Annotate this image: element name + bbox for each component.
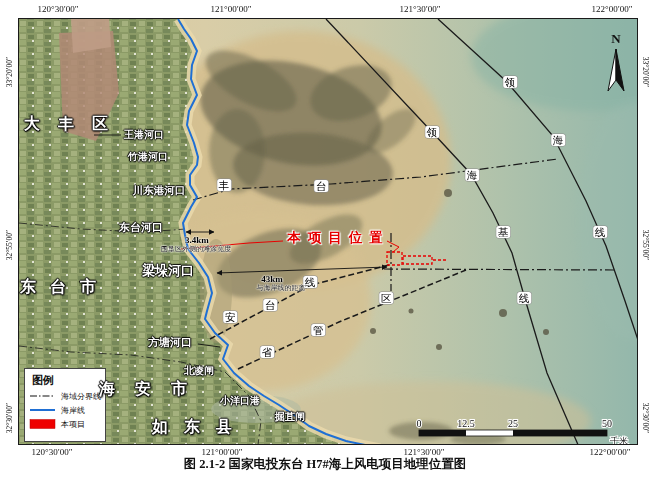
legend-items: 海域分界线海岸线本项目 [25, 389, 105, 431]
legend-item-label: 海岸线 [61, 405, 85, 416]
satellite-basemap: 0 12.5 25 50 千米 [19, 19, 638, 445]
scale-tick: 0 [417, 418, 422, 429]
compass: N [599, 31, 633, 103]
latitude-label-left: 33°20′00″ [5, 57, 14, 87]
scale-tick: 25 [508, 418, 518, 429]
longitude-label-top: 122°00′00″ [592, 4, 633, 14]
scale-unit: 千米 [610, 436, 628, 445]
map-canvas: 0 12.5 25 50 千米 图例 海域分界线海岸线本项目 N [18, 18, 638, 445]
legend-item: 海岸线 [25, 403, 105, 417]
legend-item: 本项目 [25, 417, 105, 431]
legend-title: 图例 [25, 369, 105, 389]
north-label: N [599, 31, 633, 47]
legend-symbol-coast [29, 405, 56, 415]
scale-tick: 50 [602, 418, 612, 429]
legend-item-label: 海域分界线 [61, 391, 101, 402]
longitude-label-top: 120°30′00″ [38, 4, 79, 14]
latitude-label-right: 33°20′00″ [641, 57, 650, 87]
figure-caption: 图 2.1-2 国家电投东台 H7#海上风电项目地理位置图 [0, 456, 650, 473]
legend: 图例 海域分界线海岸线本项目 [24, 368, 106, 442]
latitude-label-right: 32°55′00″ [641, 230, 650, 260]
latitude-label-left: 32°55′00″ [5, 230, 14, 260]
longitude-label-top: 121°00′00″ [211, 4, 252, 14]
latitude-label-right: 32°30′00″ [641, 403, 650, 433]
legend-item: 海域分界线 [25, 389, 105, 403]
legend-item-label: 本项目 [61, 419, 85, 430]
north-arrow-icon [599, 47, 633, 93]
longitude-label-top: 121°30′00″ [400, 4, 441, 14]
legend-symbol-project [29, 419, 56, 429]
figure-page: 0 12.5 25 50 千米 图例 海域分界线海岸线本项目 N 120°30′… [0, 0, 650, 479]
latitude-label-left: 32°30′00″ [5, 403, 14, 433]
legend-symbol-dashdot [29, 391, 56, 401]
scale-tick: 12.5 [457, 418, 475, 429]
